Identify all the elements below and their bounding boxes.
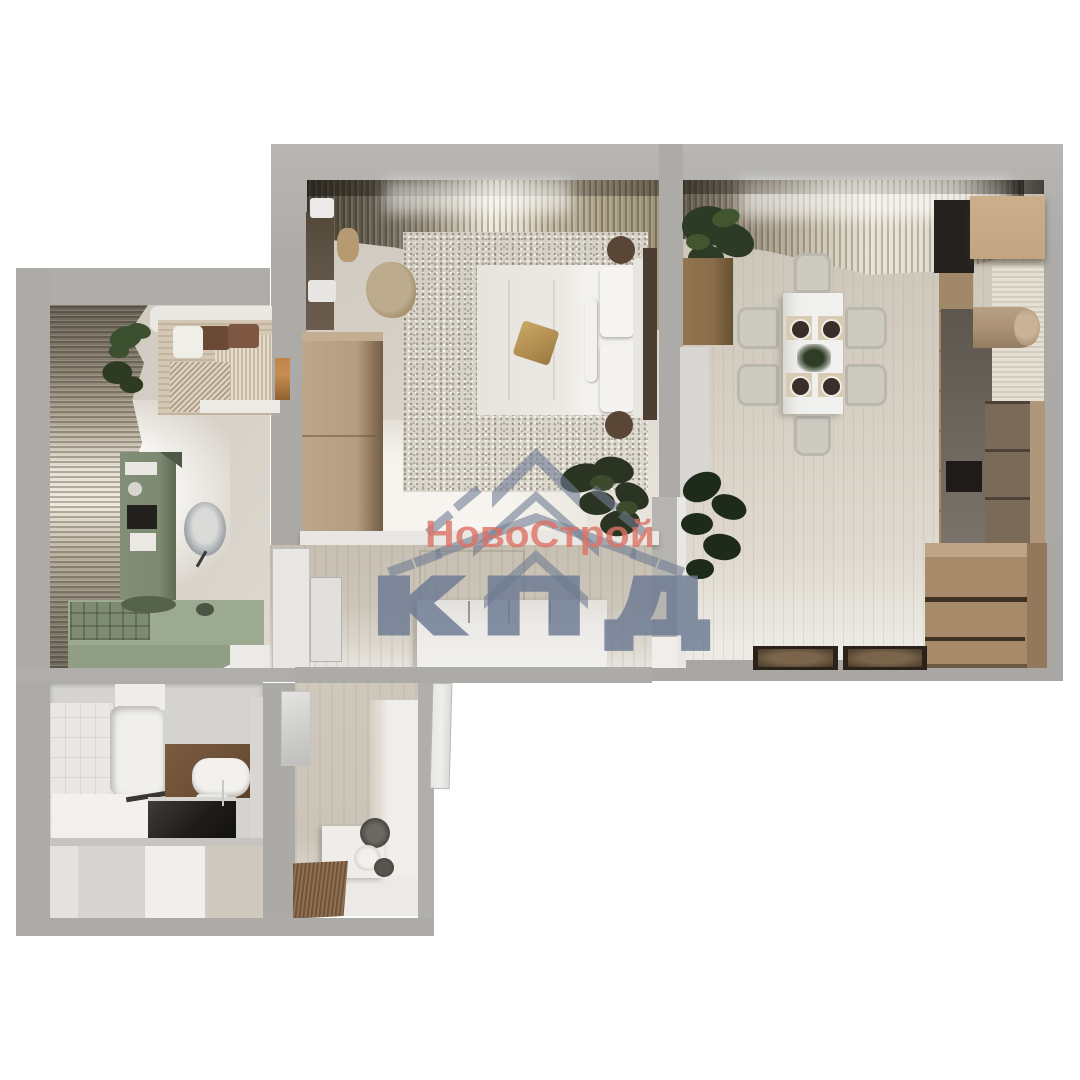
svg-text:НовоСтрой: НовоСтрой xyxy=(425,514,655,556)
svg-text:КПД: КПД xyxy=(375,563,733,649)
